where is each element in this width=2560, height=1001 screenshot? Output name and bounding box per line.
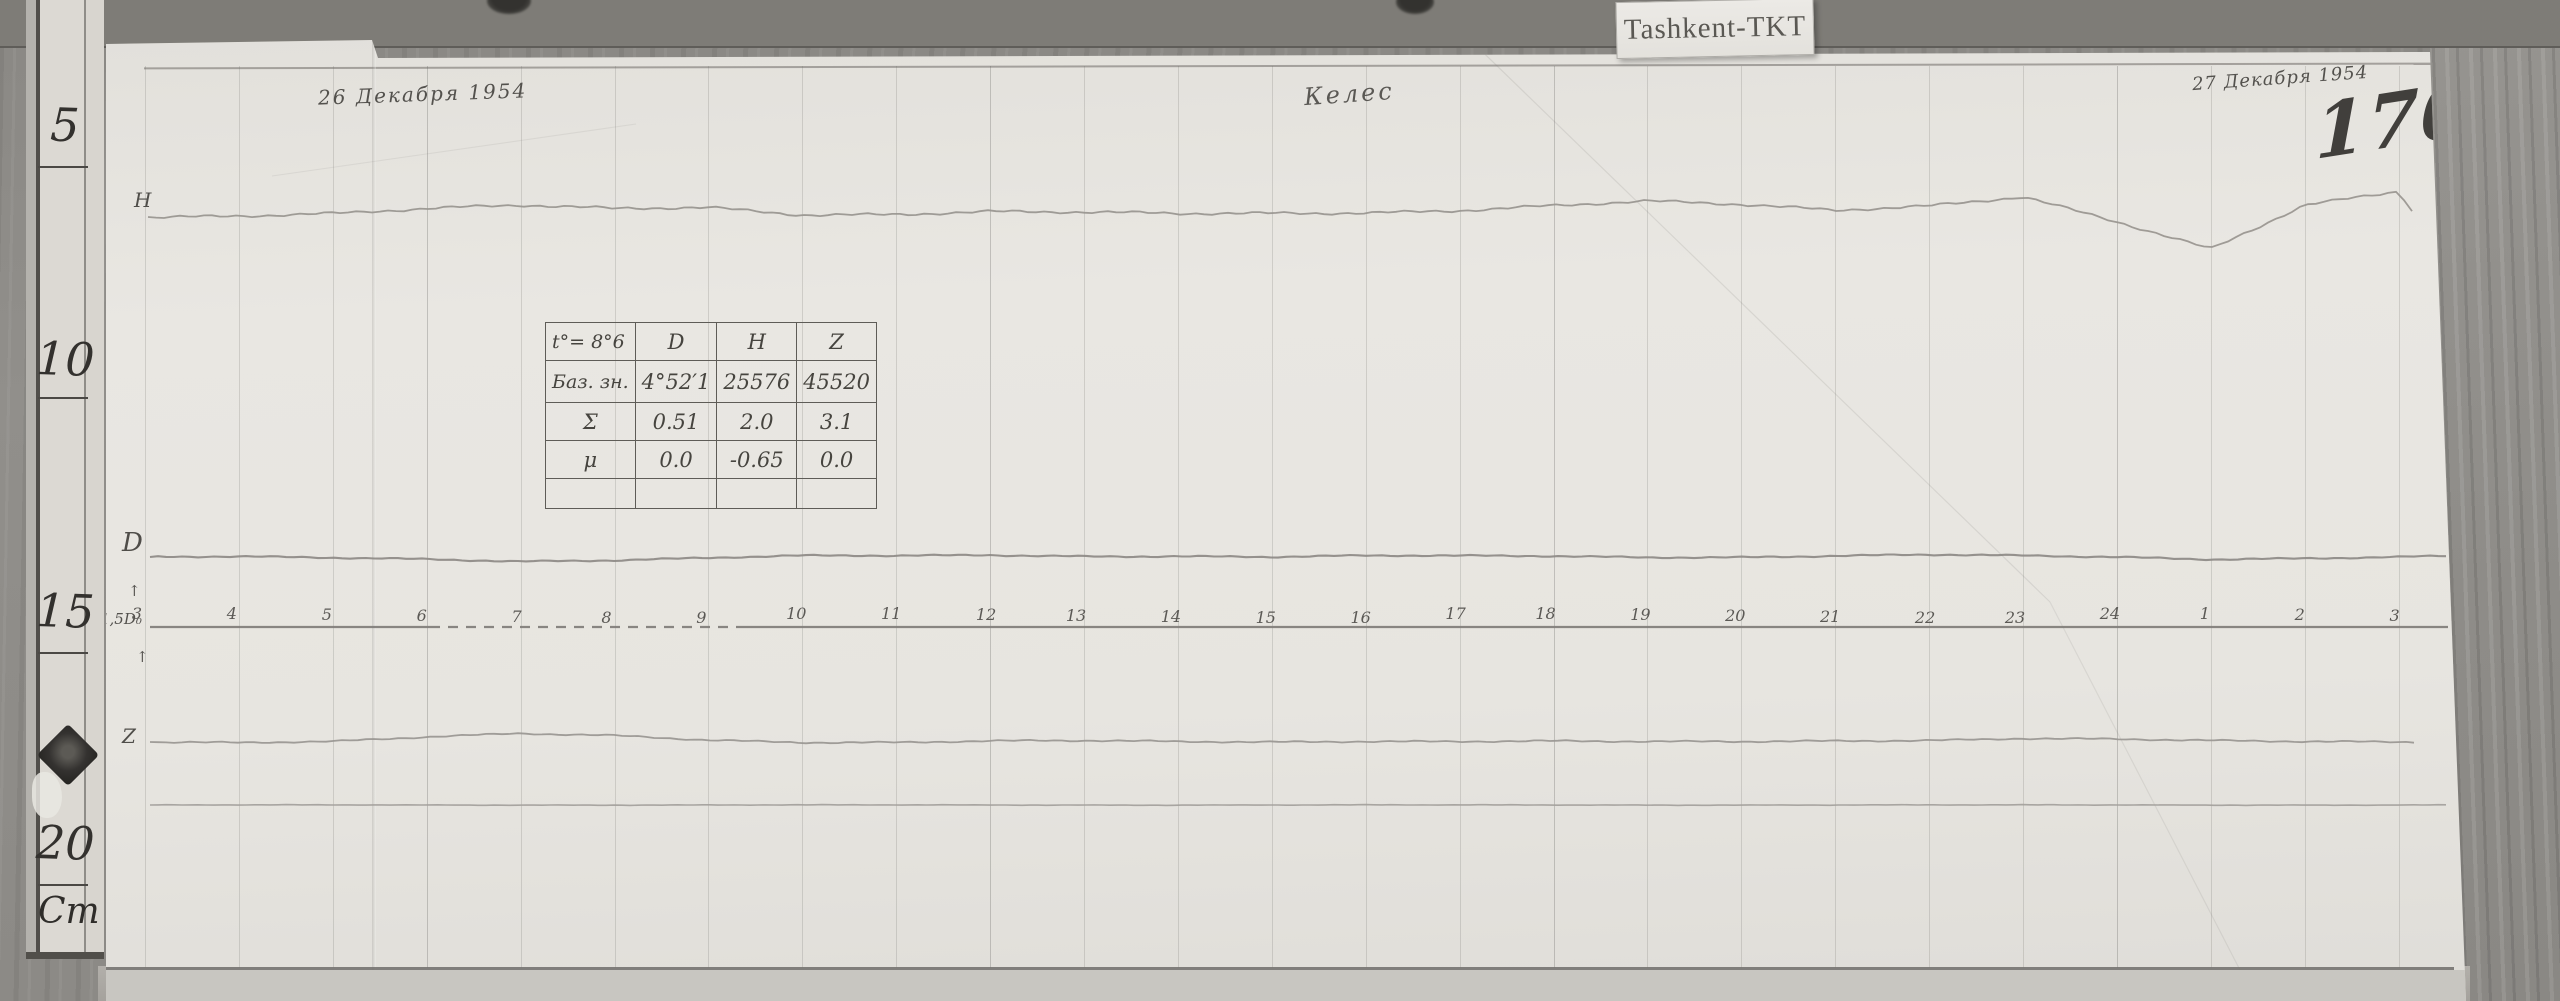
axis-or-scratch-line xyxy=(1460,30,2050,602)
trace-D xyxy=(150,555,2446,562)
trace-Z xyxy=(150,733,2414,743)
ruler-tick xyxy=(38,652,88,654)
ruler-mark-20: 20 xyxy=(35,819,95,867)
station-tag-text: Tashkent-TKT xyxy=(1624,10,1807,47)
ruler-tick xyxy=(38,397,88,399)
ruler-mark-5: 5 xyxy=(35,101,95,149)
station-tag: Tashkent-TKT xyxy=(1615,0,1814,59)
ruler-unit-label: Cm xyxy=(38,894,94,930)
ruler-chipped-paint xyxy=(32,772,62,818)
ruler-tick xyxy=(38,884,88,886)
trace-H xyxy=(148,192,2412,247)
ruler-tick xyxy=(38,166,88,168)
recorded-traces xyxy=(96,30,2476,1001)
cm-ruler: 5 10 15 20 Cm xyxy=(26,0,104,959)
magnetogram-sheet: 26 Декабря 1954 Келес 27 Декабря 1954 17… xyxy=(96,30,2476,1001)
wood-top-band xyxy=(0,0,2560,48)
axis-or-scratch-line xyxy=(272,124,636,176)
ruler-mark-10: 10 xyxy=(35,335,95,383)
axis-or-scratch-line xyxy=(2050,602,2256,1001)
trace-temperature-baseline xyxy=(150,805,2446,806)
ruler-mark-15: 15 xyxy=(35,587,95,635)
sheet-bottom-margin xyxy=(96,970,2476,1001)
